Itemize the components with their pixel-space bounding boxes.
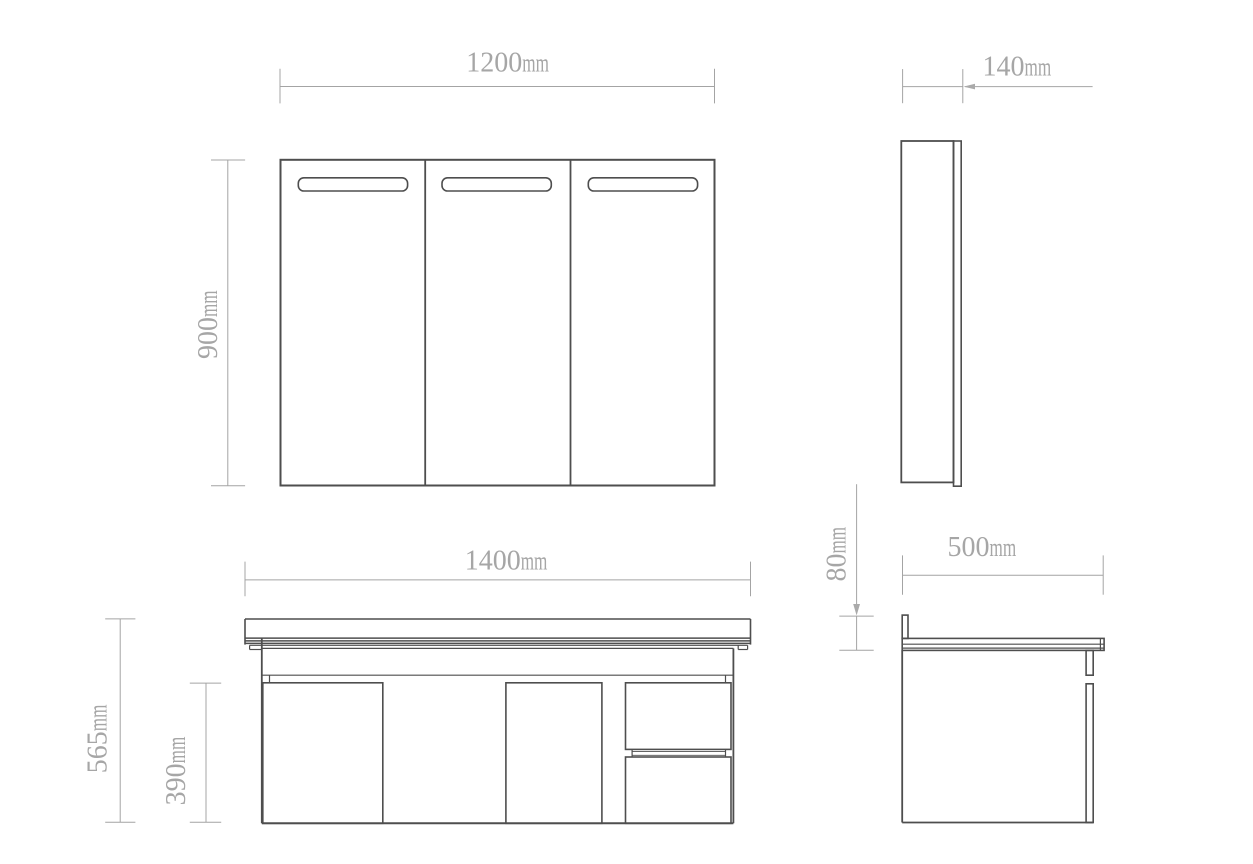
svg-text:mm: mm (1025, 52, 1052, 82)
svg-text:565: 565 (83, 731, 114, 773)
svg-text:500: 500 (948, 532, 990, 563)
svg-text:900: 900 (193, 317, 224, 359)
svg-text:390: 390 (161, 763, 192, 805)
svg-text:1400: 1400 (465, 546, 521, 577)
svg-text:mm: mm (161, 737, 191, 764)
svg-text:mm: mm (822, 527, 852, 554)
svg-text:mm: mm (522, 48, 549, 78)
svg-text:140: 140 (983, 51, 1025, 82)
svg-text:80: 80 (821, 554, 852, 582)
svg-text:1200: 1200 (466, 47, 522, 78)
svg-text:mm: mm (990, 532, 1017, 562)
svg-text:mm: mm (83, 705, 113, 732)
svg-text:mm: mm (193, 290, 223, 317)
svg-text:mm: mm (521, 546, 548, 576)
